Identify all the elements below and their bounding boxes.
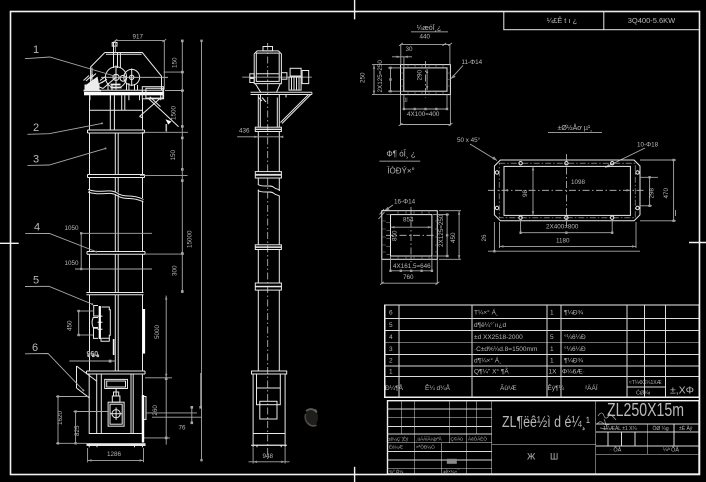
svg-text:±,XΦ: ±,XΦ xyxy=(670,385,694,397)
svg-text:ÖØ ¼g: ÖØ ¼g xyxy=(653,425,669,432)
svg-text:948: 948 xyxy=(263,453,274,460)
svg-text:±Ø½Åơ µ¹¸: ±Ø½Åơ µ¹¸ xyxy=(557,123,592,132)
svg-text:290: 290 xyxy=(417,69,424,80)
svg-text:5: 5 xyxy=(550,334,554,341)
svg-text:¶¼Ð¾: ¶¼Ð¾ xyxy=(564,358,584,365)
svg-text:d¶¼×° Á¸: d¶¼×° Á¸ xyxy=(474,356,501,365)
svg-text:98: 98 xyxy=(522,189,529,197)
svg-text:¾º Ö¼: ¾º Ö¼ xyxy=(389,468,403,474)
svg-text:°¼6¼Ð: °¼6¼Ð xyxy=(564,333,586,341)
svg-text:10-Φ18: 10-Φ18 xyxy=(637,142,659,149)
svg-text:°¼6¼Ð: °¼6¼Ð xyxy=(564,345,586,353)
svg-text:ZL250X15m: ZL250X15m xyxy=(607,400,684,420)
svg-text:1500: 1500 xyxy=(171,105,178,120)
svg-text:ĪÒĐÝ×°: ĪÒĐÝ×° xyxy=(387,167,414,176)
svg-text:±ê¼Ç´¦Êý: ±ê¼Ç´¦Êý xyxy=(388,435,409,442)
svg-text:6: 6 xyxy=(32,342,38,354)
svg-text:298: 298 xyxy=(649,187,656,198)
svg-text:854: 854 xyxy=(403,217,414,224)
svg-text:Êý¶¼: Êý¶¼ xyxy=(548,383,565,392)
svg-text:¸üÄÄÎÄ¼þºÅ: ¸üÄÄÎÄ¼þºÅ xyxy=(416,436,443,443)
svg-text:917: 917 xyxy=(133,34,144,41)
svg-text:Ж: Ж xyxy=(527,452,536,462)
svg-text:450: 450 xyxy=(67,320,74,331)
svg-text:11-Φ14: 11-Φ14 xyxy=(462,59,483,66)
svg-text:4: 4 xyxy=(34,222,40,234)
svg-text:Φ¼6Æ·: Φ¼6Æ· xyxy=(562,369,585,376)
svg-text:4: 4 xyxy=(389,334,393,341)
svg-text:440: 440 xyxy=(420,34,431,41)
svg-text:4X100=400: 4X100=400 xyxy=(407,111,440,118)
svg-text:×ªÖÐ¼Ó: ×ªÖÐ¼Ó xyxy=(416,444,435,450)
svg-text:300: 300 xyxy=(172,265,179,276)
svg-text:²ÄÁÏ: ²ÄÁÏ xyxy=(585,383,598,392)
svg-text:26: 26 xyxy=(481,234,488,242)
svg-text:1286: 1286 xyxy=(107,451,122,458)
svg-text:Τ¼×° Á¸: Τ¼×° Á¸ xyxy=(474,308,498,317)
svg-text:16-Φ14: 16-Φ14 xyxy=(394,199,416,206)
svg-text:2X125=250: 2X125=250 xyxy=(438,214,445,247)
svg-text:· ÕÅ: · ÕÅ xyxy=(610,447,622,454)
svg-text:Đ¼¶Å: Đ¼¶Å xyxy=(385,383,404,392)
svg-text:¶¼Ð¾: ¶¼Ð¾ xyxy=(564,310,584,317)
svg-text:2: 2 xyxy=(389,358,393,365)
svg-text:2X400=800: 2X400=800 xyxy=(546,224,579,231)
svg-text:d¶ё¼°´ıı¿d: d¶ё¼°´ıı¿d xyxy=(474,321,506,329)
svg-text:≈Τ¼ΦX¼1XÆ: ≈Τ¼ΦX¼1XÆ xyxy=(629,380,662,386)
svg-text:1: 1 xyxy=(389,369,393,376)
svg-text:4X161.5=646: 4X161.5=646 xyxy=(393,263,431,270)
svg-text:2: 2 xyxy=(33,122,39,134)
svg-text:1050: 1050 xyxy=(65,260,80,267)
svg-text:5000: 5000 xyxy=(154,324,161,339)
svg-text:¼£Ê t ı ¿: ¼£Ê t ı ¿ xyxy=(547,16,578,25)
svg-text:850: 850 xyxy=(392,230,399,241)
svg-text:ZL¶ёê½ì d é¼¸¹: ZL¶ёê½ì d é¼¸¹ xyxy=(502,414,590,431)
svg-text:3Q400-5.6KW: 3Q400-5.6KW xyxy=(628,16,676,25)
svg-text:2X125=250: 2X125=250 xyxy=(377,60,384,93)
svg-text:Éè¼Æ: Éè¼Æ xyxy=(389,444,403,450)
svg-text:I: I xyxy=(165,122,168,134)
svg-text:±ê×¼»¯: ±ê×¼»¯ xyxy=(443,468,460,474)
svg-text:Ãû³Æ: Ãû³Æ xyxy=(500,383,517,392)
svg-text:Ç©Ãû: Ç©Ãû xyxy=(451,436,464,442)
svg-text:1050: 1050 xyxy=(65,225,80,232)
svg-text:±È Äý: ±È Äý xyxy=(679,425,693,432)
svg-text:5: 5 xyxy=(389,322,393,329)
svg-text:5: 5 xyxy=(33,275,39,287)
svg-text:260: 260 xyxy=(152,405,159,416)
svg-text:470: 470 xyxy=(663,187,670,198)
svg-text:15000: 15000 xyxy=(187,230,194,248)
svg-text:ĆØ¼ı: ĆØ¼ı xyxy=(636,390,650,397)
svg-text:825: 825 xyxy=(74,425,81,436)
svg-text:760: 760 xyxy=(403,274,414,281)
svg-text:¼æóĪ¸¿: ¼æóĪ¸¿ xyxy=(417,24,442,32)
svg-text:ÄêÔÂÈÕ: ÄêÔÂÈÕ xyxy=(468,436,487,442)
svg-text:250: 250 xyxy=(360,72,367,83)
svg-text:Φ¶ óĪ¸ ¿: Φ¶ óĪ¸ ¿ xyxy=(386,150,415,159)
svg-text:1X: 1X xyxy=(549,369,558,376)
svg-text:1180: 1180 xyxy=(556,238,570,245)
svg-text:Ê¼ d¼Å: Ê¼ d¼Å xyxy=(425,383,451,392)
svg-text:1: 1 xyxy=(550,310,554,317)
svg-text:3: 3 xyxy=(389,346,393,353)
svg-text:450: 450 xyxy=(450,232,457,243)
svg-text:150: 150 xyxy=(172,57,179,68)
svg-text:6: 6 xyxy=(389,310,393,317)
svg-text:·C±d%¼d.8=1500mm: ·C±d%¼d.8=1500mm xyxy=(474,346,537,353)
svg-text:1: 1 xyxy=(33,44,39,56)
svg-text:436: 436 xyxy=(239,128,250,135)
svg-text:76: 76 xyxy=(179,425,187,432)
svg-text:30: 30 xyxy=(406,46,414,53)
svg-text:50 x 45°: 50 x 45° xyxy=(457,136,481,144)
svg-text:1098: 1098 xyxy=(571,179,586,186)
svg-text:1: 1 xyxy=(550,358,554,365)
svg-text:150: 150 xyxy=(170,149,177,160)
svg-text:Q¶¼" X° ¶Å: Q¶¼" X° ¶Å xyxy=(474,367,509,376)
svg-text:1: 1 xyxy=(550,346,554,353)
svg-text:3: 3 xyxy=(33,154,39,166)
svg-text:1¼ÆĀL ±1 X¼: 1¼ÆĀL ±1 X¼ xyxy=(603,425,638,432)
svg-text:±d XX2518-2000: ±d XX2518-2000 xyxy=(474,334,523,341)
svg-text:Ш: Ш xyxy=(550,452,558,462)
svg-text:¼ª ÕÅ: ¼ª ÕÅ xyxy=(663,447,679,454)
